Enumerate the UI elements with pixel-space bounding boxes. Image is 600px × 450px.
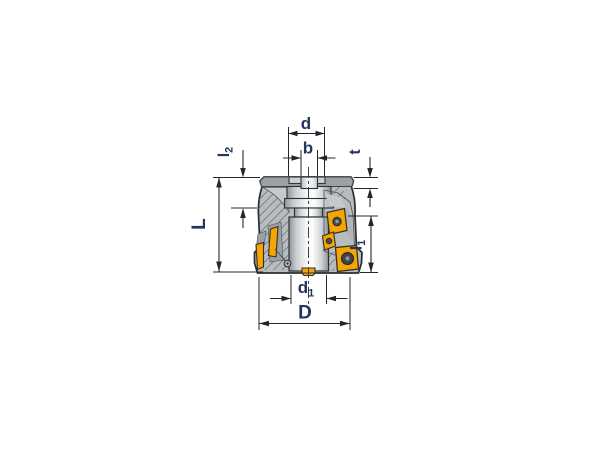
dim-label-b: b	[303, 139, 313, 158]
arrowhead	[340, 321, 350, 327]
dimension-L: L	[189, 178, 263, 273]
arrowhead	[292, 155, 302, 161]
dim-label-l2: l2	[216, 147, 236, 158]
dimension-l2: l2	[216, 147, 257, 228]
arrowhead	[368, 263, 374, 273]
arrowhead	[240, 168, 246, 178]
cutter-drawing: d b t l2 L	[0, 0, 600, 450]
dimension-d1: d1	[270, 275, 348, 304]
insert-left-sliver	[269, 227, 279, 258]
screenshot-canvas: d b t l2 L	[0, 0, 600, 450]
dim-label-L: L	[189, 218, 210, 230]
arrowhead	[259, 321, 269, 327]
dim-label-D: D	[298, 303, 312, 324]
left-screw-tip-center	[286, 262, 288, 264]
arrowhead	[367, 189, 373, 199]
arrowhead	[216, 262, 222, 272]
arrowhead	[240, 208, 246, 218]
insert-upper-screw-center	[336, 220, 339, 223]
arrowhead	[318, 155, 328, 161]
arrowhead	[216, 178, 222, 188]
dimension-b: b	[283, 139, 336, 177]
insert-middle-screw	[326, 238, 332, 244]
dim-label-d: d	[301, 114, 311, 133]
arrowhead	[289, 131, 298, 137]
arrowhead	[367, 168, 373, 178]
arrowhead	[368, 216, 374, 226]
arrowhead	[282, 296, 292, 302]
insert-bottom-right-screw-center	[345, 256, 349, 260]
arrowhead	[316, 131, 325, 137]
dim-label-t: t	[347, 149, 364, 155]
dim-label-d1: d1	[298, 278, 315, 300]
drive-slot	[301, 177, 318, 189]
insert-bottom-left	[256, 243, 264, 270]
arrowhead	[327, 296, 337, 302]
